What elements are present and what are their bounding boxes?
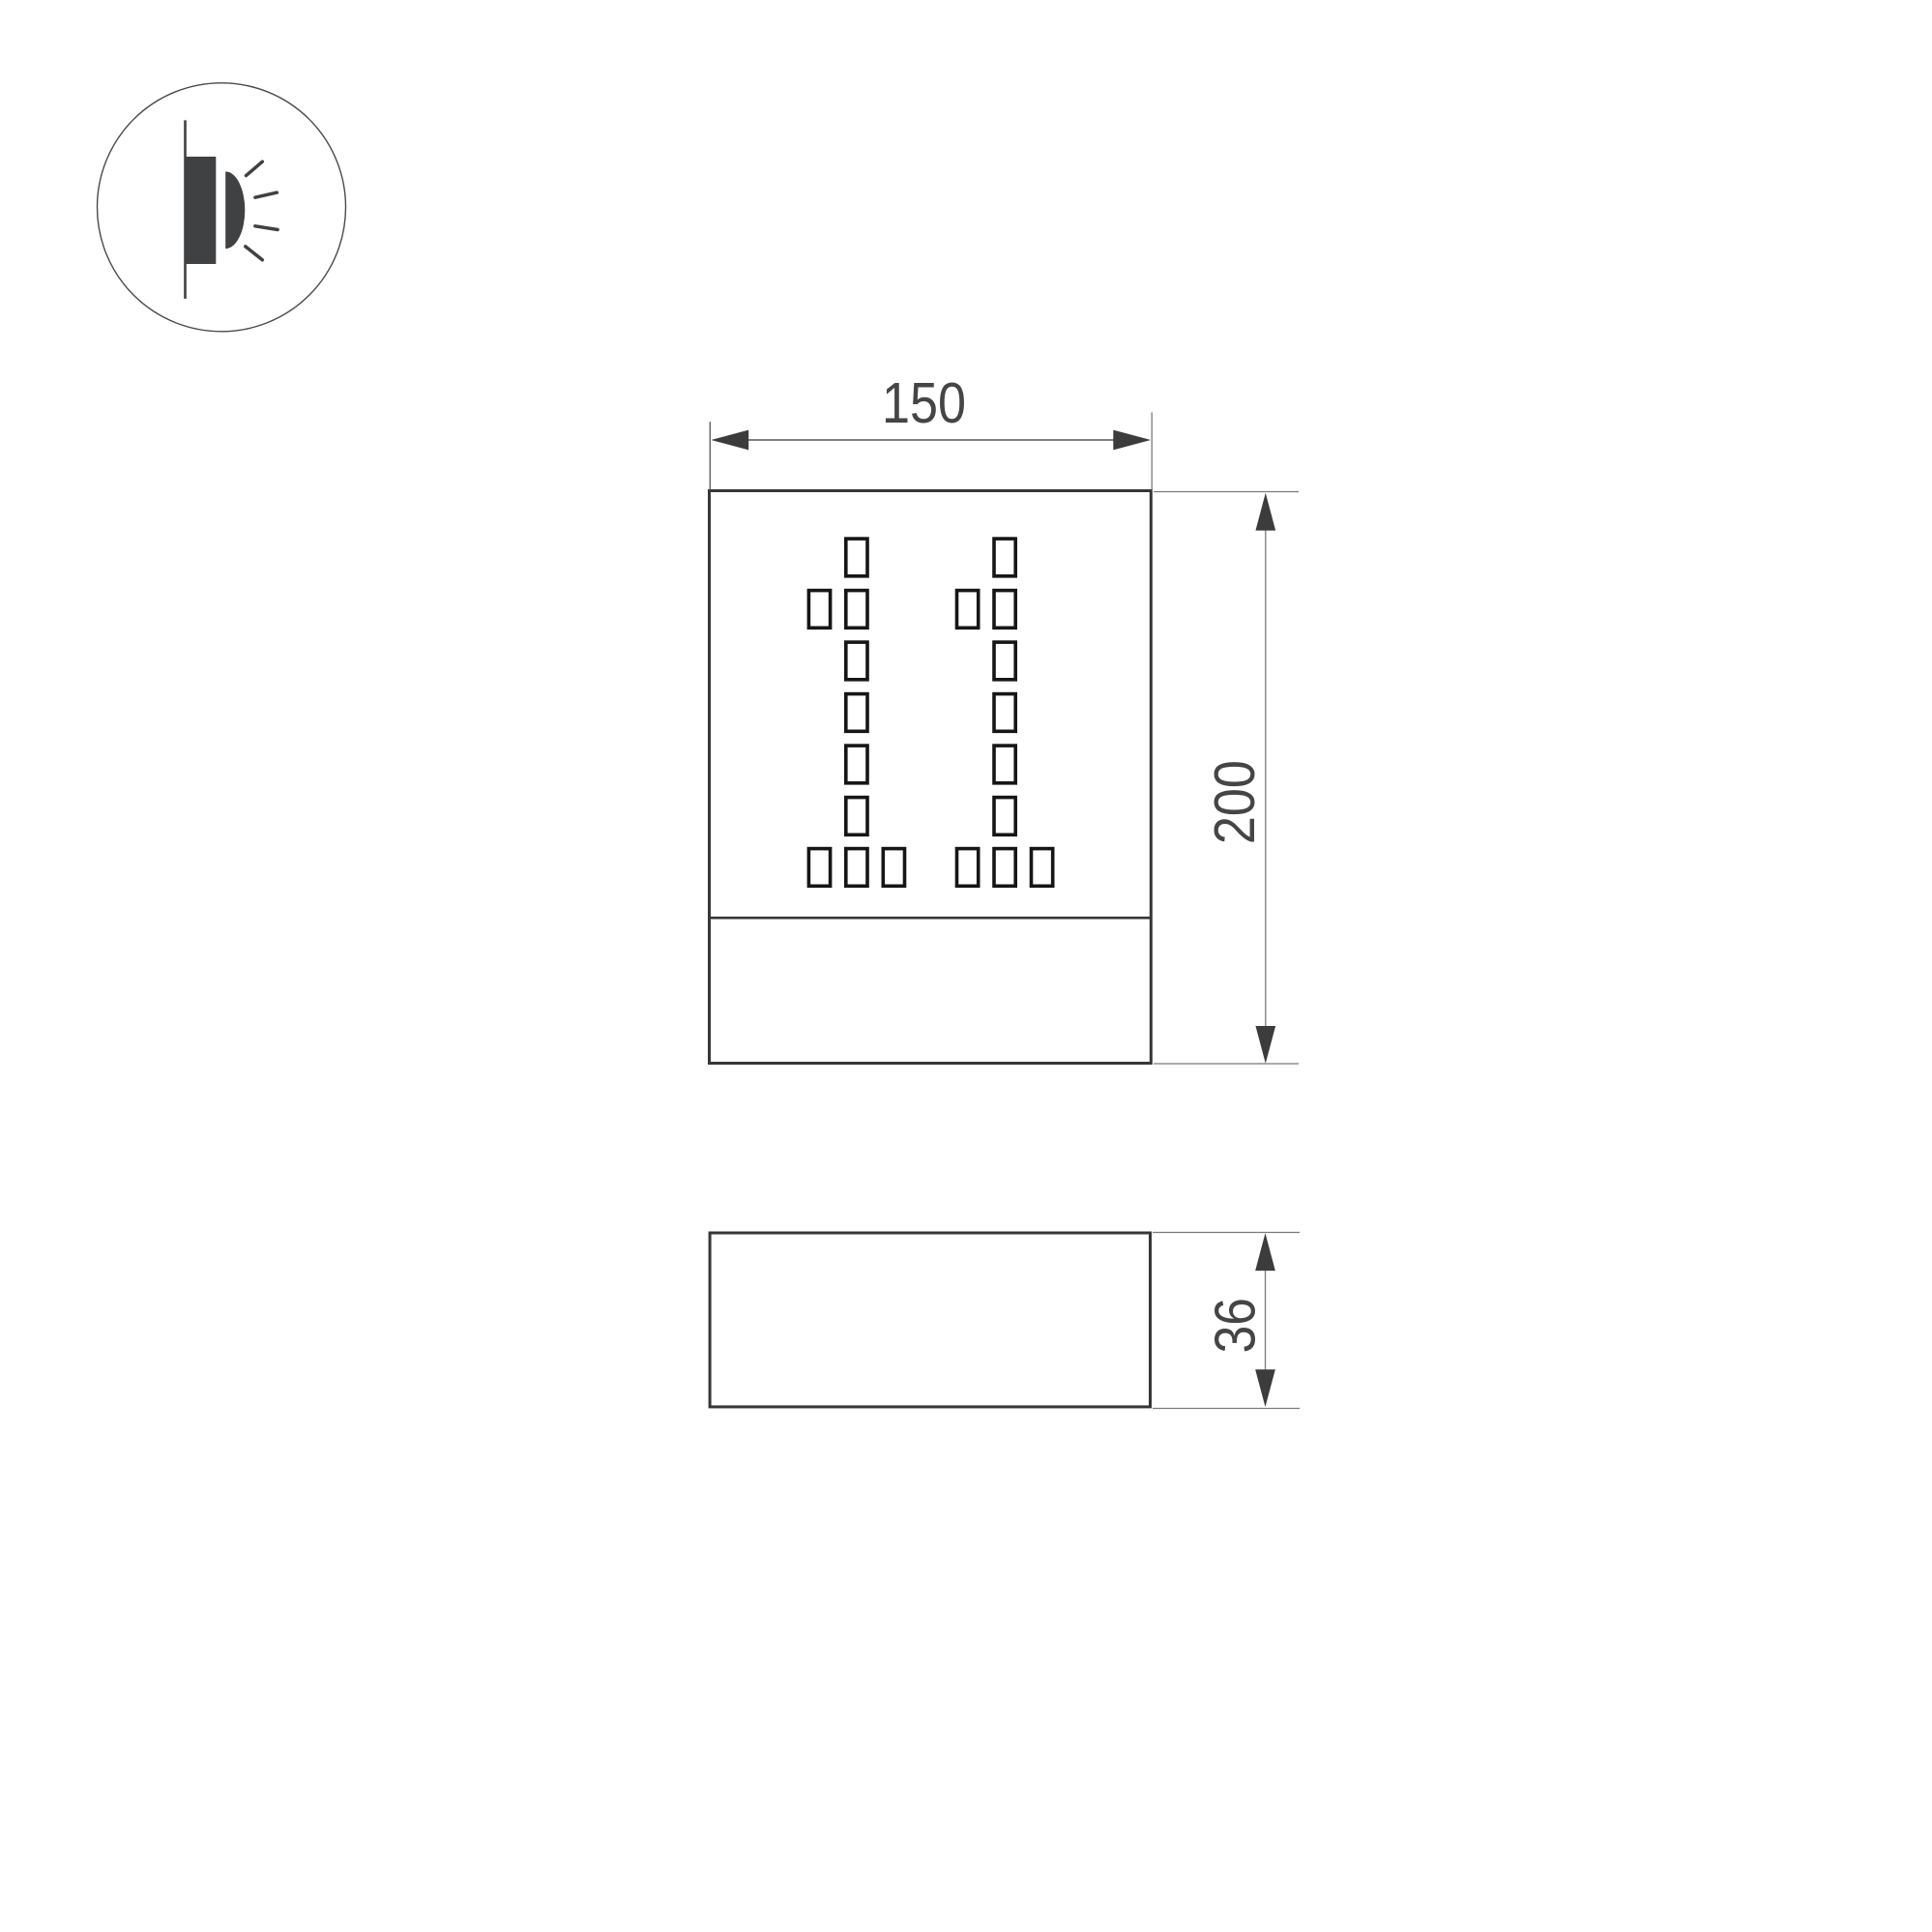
svg-text:200: 200 [1203,760,1267,844]
svg-text:36: 36 [1204,1298,1268,1353]
svg-text:150: 150 [882,371,966,435]
